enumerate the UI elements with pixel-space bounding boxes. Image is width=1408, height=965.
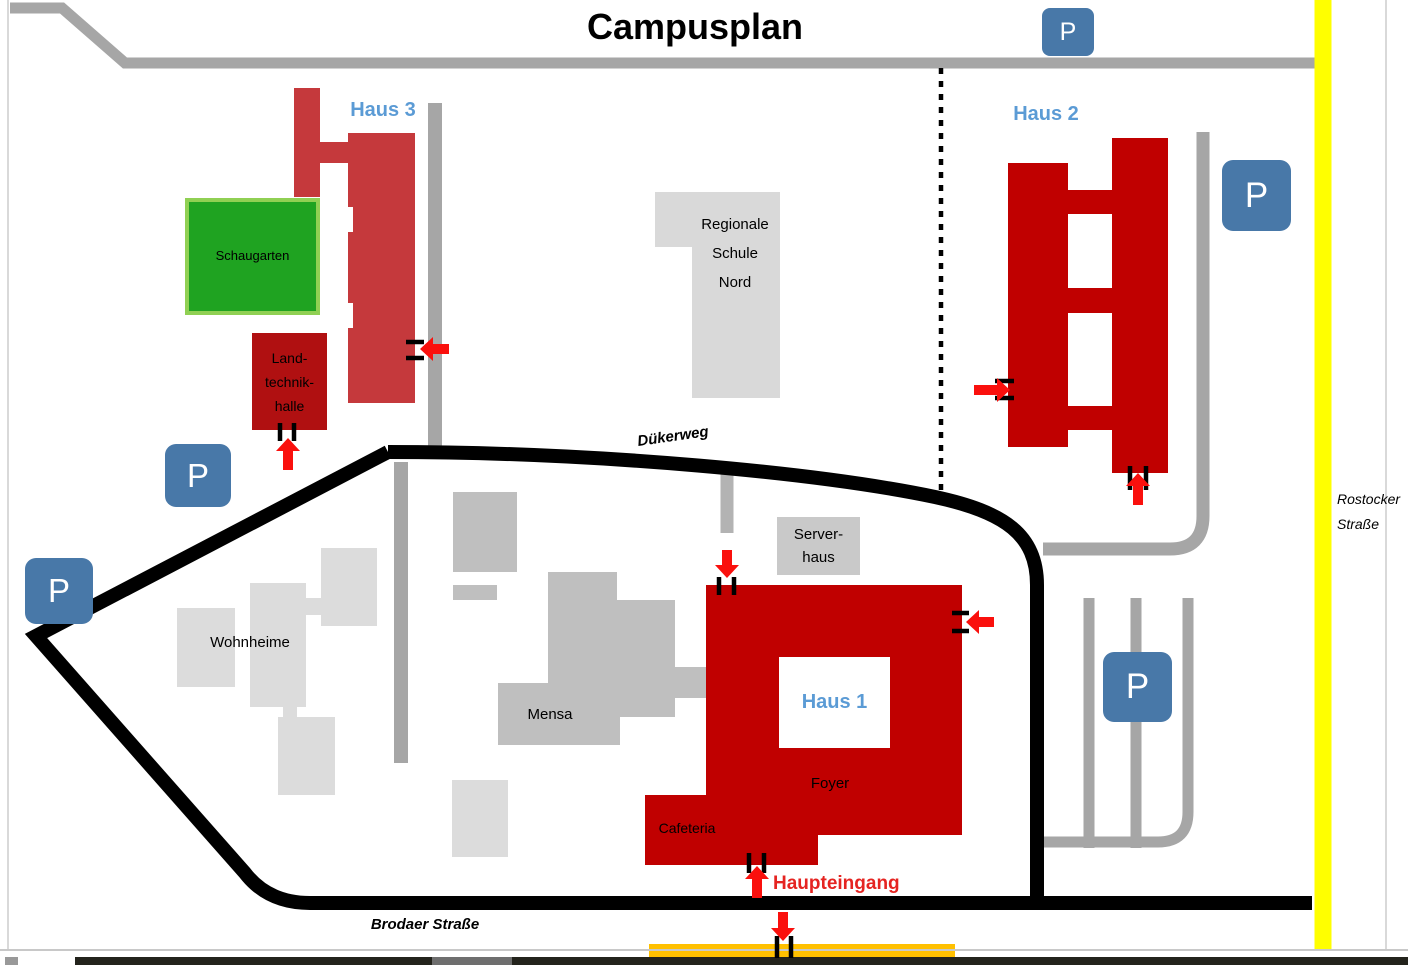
- campus-map: Schaugarten Land- technik- halle Regiona…: [0, 0, 1408, 965]
- haus3-entrance-arrow-icon: [420, 337, 449, 361]
- entrance-ticks: [280, 342, 1146, 958]
- landtechnik-entrance-arrow-icon: [276, 438, 300, 470]
- haus1-east-entrance-arrow-icon: [966, 610, 994, 634]
- entrance-arrows: [276, 337, 1150, 941]
- haus1-north-entrance-arrow-icon: [715, 550, 739, 578]
- markers-layer: [0, 0, 1408, 965]
